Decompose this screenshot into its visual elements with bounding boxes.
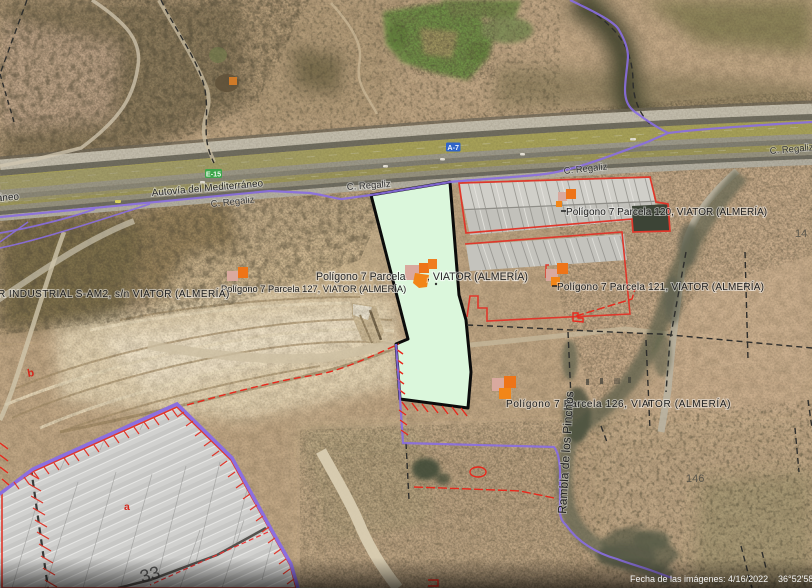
svg-text:Fecha de las imágenes: 4/16/20: Fecha de las imágenes: 4/16/2022 (630, 574, 768, 584)
svg-text:E-15: E-15 (206, 169, 221, 178)
svg-text:áneo: áneo (0, 192, 20, 205)
svg-text:Polígono 7 Parcela 121, VIATOR: Polígono 7 Parcela 121, VIATOR (ALMERÍA) (557, 280, 764, 293)
svg-text:146: 146 (686, 473, 704, 485)
svg-text:, VIATOR (ALMERÍA): , VIATOR (ALMERÍA) (427, 270, 528, 283)
svg-text:14: 14 (795, 228, 807, 240)
svg-text:R INDUSTRIAL S-AM2, s/n VIATOR: R INDUSTRIAL S-AM2, s/n VIATOR (ALMERÍA) (0, 287, 230, 300)
svg-text:Polígono 7 Parcela 126, VIATOR: Polígono 7 Parcela 126, VIATOR (ALMERÍA) (506, 397, 731, 410)
svg-text:Polígono 7 Parcela: Polígono 7 Parcela (316, 271, 406, 283)
svg-text:36°52'58.: 36°52'58. (778, 574, 812, 584)
svg-text:A-7: A-7 (447, 143, 459, 152)
svg-text:Polígono 7 Parcela 127, VIATOR: Polígono 7 Parcela 127, VIATOR (ALMERÍA) (221, 284, 406, 294)
svg-text:a: a (124, 501, 130, 513)
svg-text:Polígono 7 Parcela 120, VIATOR: Polígono 7 Parcela 120, VIATOR (ALMERÍA) (566, 205, 767, 218)
